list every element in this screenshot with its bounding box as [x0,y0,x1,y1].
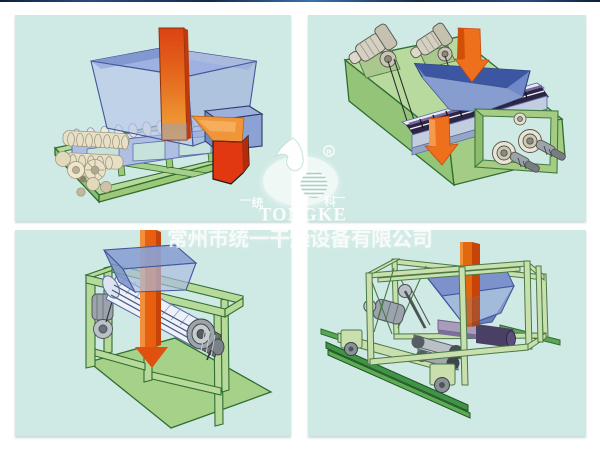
svg-text:R: R [326,147,332,156]
svg-text:TONGKE: TONGKE [259,206,347,226]
